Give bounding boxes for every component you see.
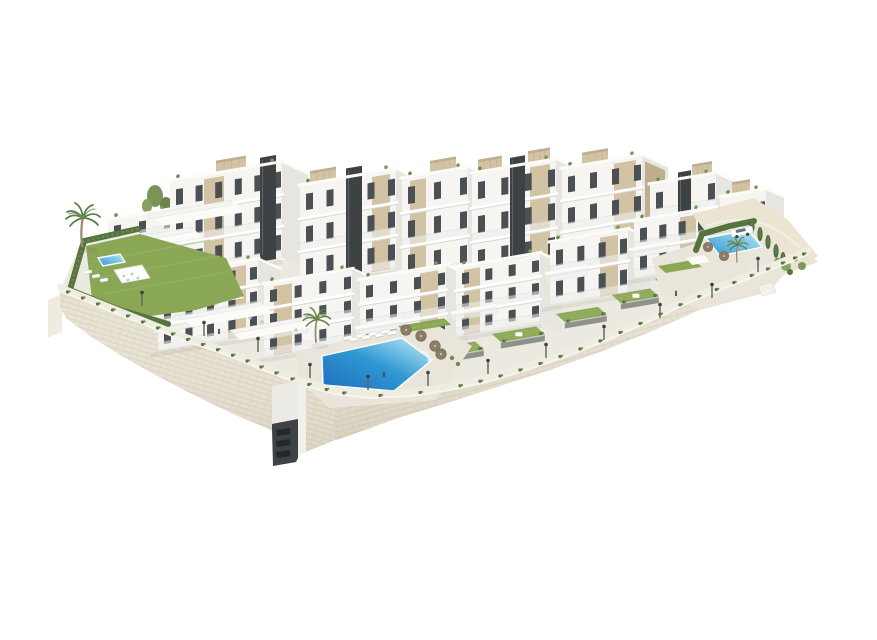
window bbox=[612, 199, 619, 216]
person bbox=[383, 372, 385, 377]
cypress-tree bbox=[757, 227, 762, 241]
window bbox=[388, 179, 395, 197]
parasol bbox=[703, 242, 712, 251]
garden-table bbox=[632, 294, 639, 298]
patio-furniture bbox=[260, 320, 263, 323]
window bbox=[612, 168, 619, 185]
window bbox=[485, 268, 492, 281]
window bbox=[306, 193, 313, 211]
tower-fin bbox=[298, 379, 306, 456]
window bbox=[327, 222, 334, 240]
window bbox=[568, 207, 575, 224]
window bbox=[478, 215, 485, 233]
window bbox=[366, 285, 373, 298]
window bbox=[590, 172, 597, 189]
window bbox=[656, 192, 663, 210]
window bbox=[568, 176, 575, 193]
window bbox=[462, 272, 469, 285]
patio-furniture bbox=[294, 328, 297, 331]
window bbox=[434, 215, 441, 233]
window bbox=[460, 177, 467, 195]
window bbox=[577, 245, 584, 262]
wall-left-face bbox=[48, 294, 62, 338]
window bbox=[548, 169, 555, 187]
window bbox=[460, 211, 467, 229]
person bbox=[218, 329, 220, 334]
window bbox=[390, 281, 397, 294]
window bbox=[438, 272, 445, 285]
window bbox=[270, 289, 277, 302]
window bbox=[344, 276, 351, 289]
window bbox=[408, 220, 415, 238]
patio-furniture bbox=[248, 316, 251, 319]
window bbox=[460, 245, 467, 263]
window bbox=[434, 181, 441, 199]
window bbox=[250, 267, 257, 281]
window bbox=[577, 276, 584, 293]
window bbox=[548, 203, 555, 221]
window bbox=[599, 242, 606, 259]
window bbox=[306, 258, 313, 276]
window bbox=[708, 183, 715, 201]
window bbox=[306, 225, 313, 243]
window bbox=[176, 188, 183, 205]
window bbox=[414, 276, 421, 289]
parasol bbox=[416, 331, 426, 341]
window bbox=[295, 285, 302, 298]
service-tower bbox=[272, 379, 306, 466]
window bbox=[532, 260, 539, 273]
cypress-tree bbox=[765, 235, 770, 249]
window bbox=[525, 207, 532, 225]
architectural-render bbox=[0, 0, 877, 640]
window bbox=[196, 185, 203, 202]
render-canvas bbox=[0, 0, 877, 640]
window bbox=[590, 203, 597, 220]
parasol bbox=[719, 251, 728, 260]
window bbox=[327, 254, 334, 272]
window bbox=[556, 280, 563, 297]
window bbox=[501, 211, 508, 229]
cypress-tree bbox=[773, 244, 778, 258]
window bbox=[368, 182, 375, 200]
person bbox=[675, 291, 677, 296]
window bbox=[319, 281, 326, 294]
window bbox=[388, 211, 395, 229]
window bbox=[388, 244, 395, 262]
window bbox=[327, 189, 334, 207]
window bbox=[599, 273, 606, 290]
window bbox=[215, 181, 222, 198]
window bbox=[408, 186, 415, 204]
window bbox=[368, 215, 375, 233]
parasol bbox=[401, 325, 411, 335]
window bbox=[556, 249, 563, 266]
window bbox=[509, 264, 516, 277]
window bbox=[634, 196, 641, 213]
window bbox=[501, 177, 508, 195]
garden-table bbox=[515, 332, 522, 336]
window bbox=[525, 173, 532, 191]
window bbox=[368, 247, 375, 265]
window bbox=[634, 164, 641, 181]
window bbox=[478, 181, 485, 199]
window bbox=[235, 178, 242, 195]
window bbox=[235, 241, 242, 258]
window bbox=[620, 238, 627, 255]
